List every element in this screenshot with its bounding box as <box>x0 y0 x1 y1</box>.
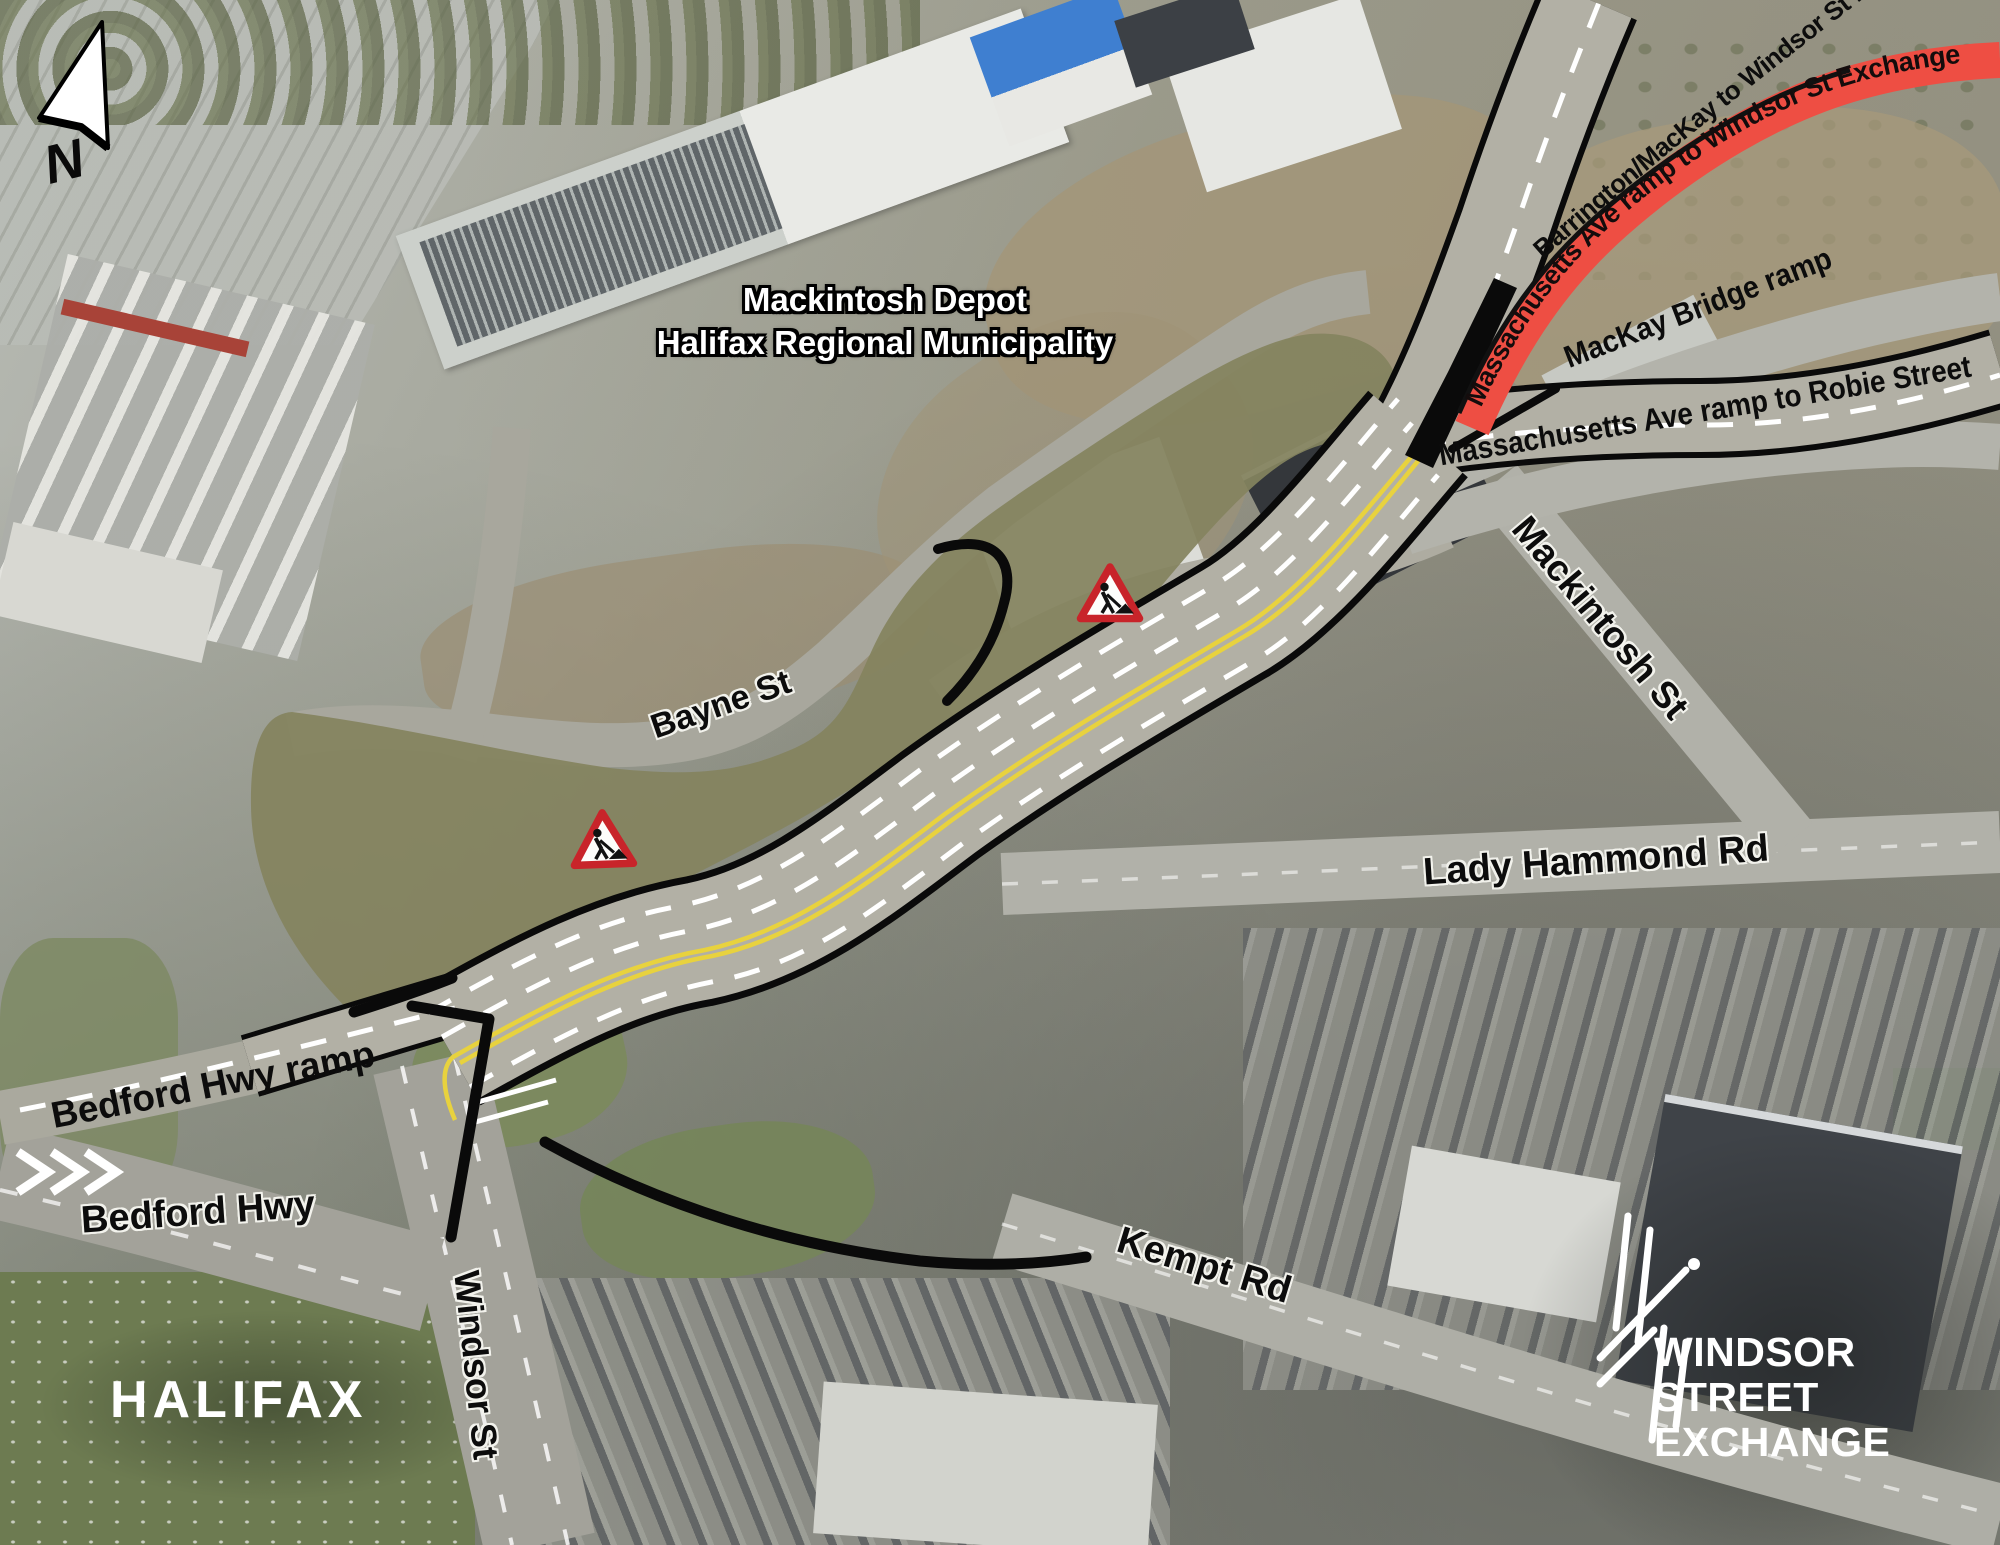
halifax-logo: HALIFAX <box>110 1370 367 1430</box>
depot-label-line2: Halifax Regional Municipality <box>657 322 1114 365</box>
depot-label: Mackintosh Depot Halifax Regional Munici… <box>657 279 1114 365</box>
project-wordmark: WINDSOR STREET EXCHANGE <box>1654 1330 1890 1465</box>
north-label: N <box>38 128 91 196</box>
project-line1: WINDSOR <box>1654 1330 1890 1375</box>
north-arrow-icon: N <box>38 22 108 196</box>
aerial-map: N Barrington/MacKay to Windsor St Exchan… <box>0 0 2000 1545</box>
project-line3: EXCHANGE <box>1654 1420 1890 1465</box>
windsor-street-exchange-logo: WINDSOR STREET EXCHANGE <box>1588 1208 2000 1478</box>
depot-label-line1: Mackintosh Depot <box>657 279 1114 322</box>
project-line2: STREET <box>1654 1375 1890 1420</box>
